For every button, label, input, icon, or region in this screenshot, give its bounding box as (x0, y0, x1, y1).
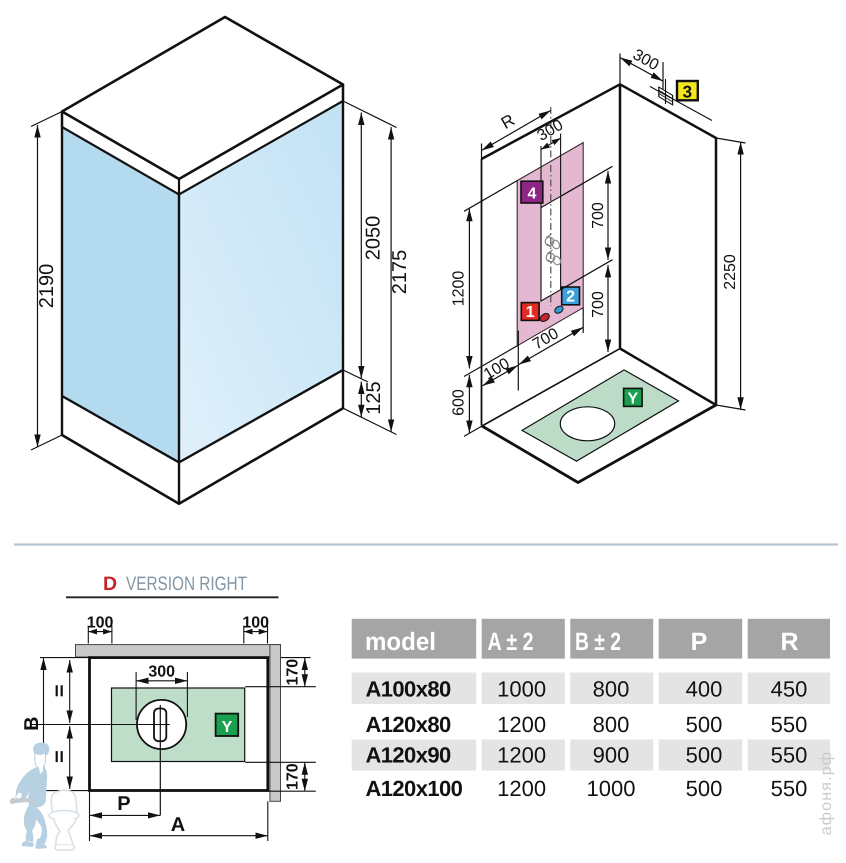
svg-text:P: P (117, 793, 130, 815)
svg-text:A120x80: A120x80 (366, 712, 451, 737)
svg-text:500: 500 (686, 712, 723, 737)
svg-text:A120x90: A120x90 (366, 743, 451, 768)
svg-text:300: 300 (148, 664, 175, 681)
svg-text:Y: Y (222, 719, 233, 736)
svg-text:550: 550 (771, 743, 808, 768)
svg-text:170: 170 (284, 659, 301, 686)
svg-text:400: 400 (686, 677, 723, 702)
svg-text:A: A (171, 814, 185, 836)
svg-text:B ± 2: B ± 2 (575, 628, 621, 656)
svg-text:700: 700 (590, 291, 607, 318)
svg-text:1200: 1200 (497, 776, 546, 801)
svg-text:600: 600 (451, 389, 468, 416)
svg-text:1000: 1000 (497, 677, 546, 702)
svg-text:900: 900 (593, 743, 630, 768)
svg-text:2250: 2250 (722, 254, 739, 290)
svg-text:2: 2 (566, 288, 575, 305)
svg-text:1: 1 (526, 304, 535, 321)
svg-text:450: 450 (771, 677, 808, 702)
svg-text:A ± 2: A ± 2 (488, 628, 534, 656)
svg-text:700: 700 (590, 202, 607, 229)
svg-text:1000: 1000 (587, 776, 636, 801)
svg-text:1200: 1200 (497, 712, 546, 737)
svg-text:800: 800 (593, 677, 630, 702)
svg-text:VERSION RIGHT: VERSION RIGHT (126, 573, 247, 595)
svg-text:125: 125 (363, 381, 385, 414)
svg-text:2190: 2190 (36, 264, 58, 309)
svg-text:100: 100 (87, 615, 114, 632)
svg-text:A100x80: A100x80 (366, 677, 451, 702)
svg-text:P: P (691, 628, 708, 656)
svg-text:A120x100: A120x100 (366, 776, 463, 801)
svg-text:1200: 1200 (451, 271, 468, 307)
svg-text:R: R (780, 628, 798, 656)
svg-text:B: B (21, 716, 43, 730)
svg-text:model: model (365, 628, 436, 656)
svg-text:4: 4 (527, 186, 536, 203)
svg-text:100: 100 (242, 615, 269, 632)
svg-text:500: 500 (686, 743, 723, 768)
svg-text:2175: 2175 (389, 250, 411, 295)
svg-text:550: 550 (771, 776, 808, 801)
svg-text:Y: Y (627, 390, 638, 407)
svg-text:550: 550 (771, 712, 808, 737)
svg-text:D: D (103, 573, 117, 595)
svg-text:3: 3 (683, 82, 692, 101)
svg-text:170: 170 (284, 763, 301, 790)
svg-text:1200: 1200 (497, 743, 546, 768)
svg-text:800: 800 (593, 712, 630, 737)
svg-text:афоня.рф: афоня.рф (818, 751, 835, 836)
svg-text:2050: 2050 (362, 216, 384, 261)
svg-text:500: 500 (686, 776, 723, 801)
